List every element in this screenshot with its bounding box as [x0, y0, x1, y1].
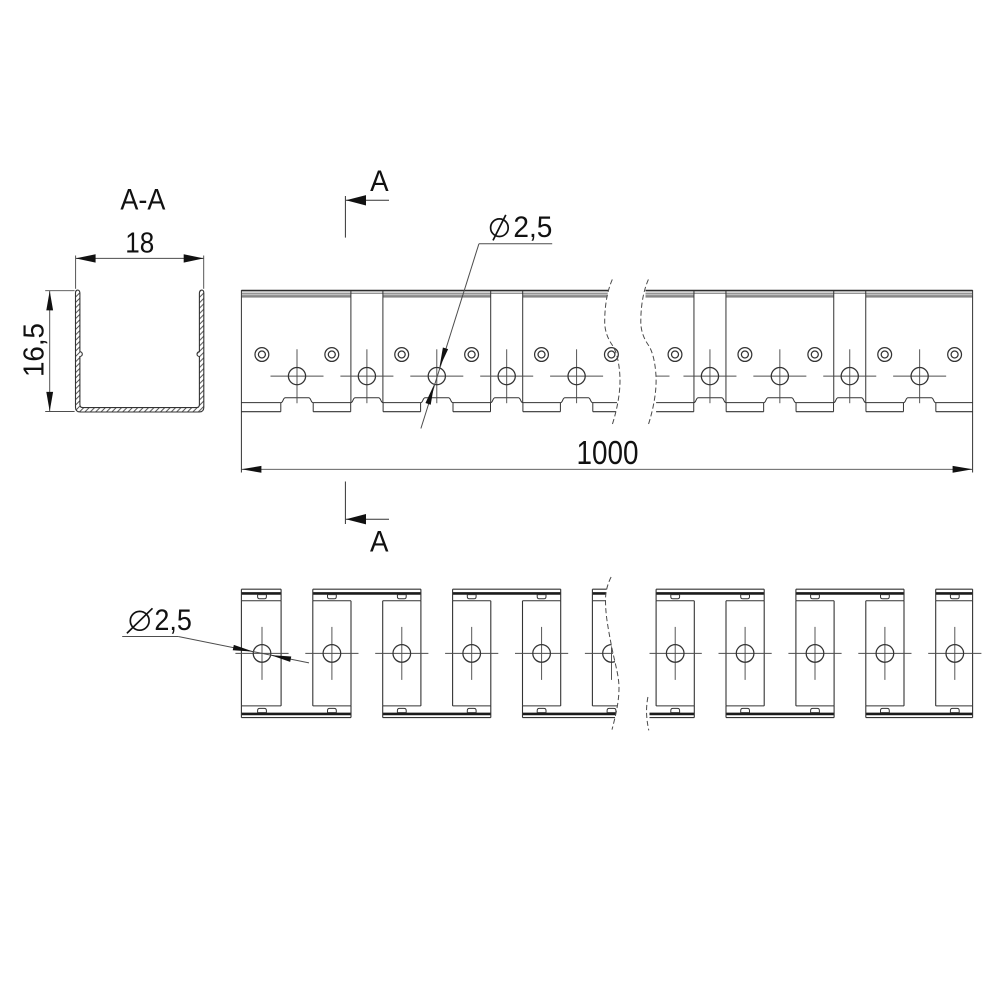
svg-text:A-A: A-A	[120, 184, 165, 217]
svg-text:A: A	[370, 526, 389, 559]
svg-text:18: 18	[125, 228, 154, 260]
svg-text:16,5: 16,5	[19, 323, 51, 377]
svg-text:2,5: 2,5	[154, 604, 192, 637]
svg-text:1000: 1000	[577, 435, 639, 472]
svg-text:A: A	[370, 165, 389, 198]
svg-text:2,5: 2,5	[513, 211, 552, 244]
